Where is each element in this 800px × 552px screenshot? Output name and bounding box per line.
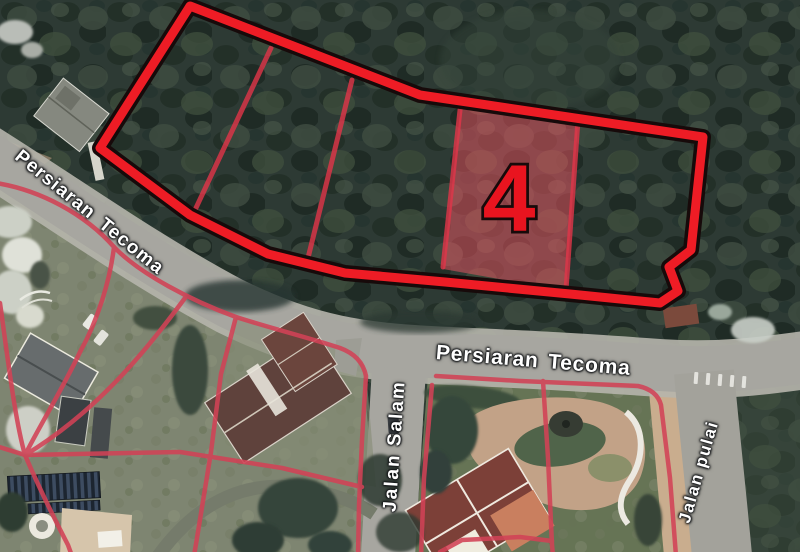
parcel-number: 4 [483, 146, 536, 252]
road-jalan-pulai [704, 372, 722, 552]
vehicle-dark [387, 414, 399, 435]
map-canvas: 4 [0, 0, 800, 552]
satellite-map[interactable]: 4 Persiaran Tecoma Persiaran Tecoma Jala… [0, 0, 800, 552]
